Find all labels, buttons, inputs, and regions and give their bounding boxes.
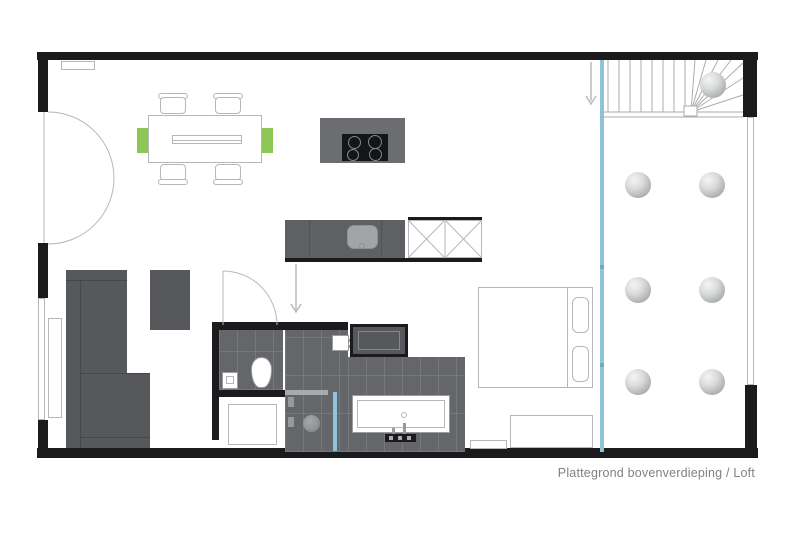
ceiling-light xyxy=(625,369,651,395)
sink-tap-icon xyxy=(359,243,365,249)
shower-drain xyxy=(303,415,320,432)
glass-partition xyxy=(600,60,604,452)
wall-left-upper xyxy=(38,58,48,112)
dining-bench-green-right xyxy=(262,128,273,153)
sofa-seam xyxy=(80,280,81,448)
washbasin xyxy=(332,335,349,351)
burner-icon xyxy=(369,148,382,161)
dining-chair xyxy=(213,163,243,187)
wc-hand-basin xyxy=(222,372,238,389)
burner-icon xyxy=(368,135,382,149)
wc-wall-bottom xyxy=(212,390,285,397)
ceiling-light xyxy=(699,369,725,395)
half-wall xyxy=(285,390,328,395)
cooktop xyxy=(342,134,388,161)
bathroom-door-icon xyxy=(223,271,277,325)
kitchen-counter xyxy=(285,220,405,258)
bathtub xyxy=(352,395,450,433)
arrow-down-icon xyxy=(291,264,301,312)
floor-step xyxy=(470,440,507,449)
wall-right-upper xyxy=(743,57,757,117)
burner-icon xyxy=(348,136,361,149)
ceiling-light xyxy=(699,172,725,198)
arrow-down-icon xyxy=(586,62,596,104)
shower-control xyxy=(288,397,294,407)
dining-table-centerpiece xyxy=(172,135,242,144)
bathroom-vanity xyxy=(350,324,408,357)
shower-control xyxy=(288,417,294,427)
sofa xyxy=(66,270,127,448)
bath-tap-deck xyxy=(385,434,416,442)
closet-wall-left xyxy=(212,397,219,440)
ceiling-light xyxy=(700,72,726,98)
dining-bench-green-left xyxy=(137,128,148,153)
wc-wall-left xyxy=(212,322,219,398)
toilet xyxy=(251,357,272,388)
closet-void xyxy=(228,404,277,445)
shelf-top-left xyxy=(61,61,95,70)
dining-chair xyxy=(213,93,243,117)
double-door-icon xyxy=(44,112,114,244)
bathroom-wall-top xyxy=(212,322,348,330)
sofa-seam xyxy=(80,437,150,438)
pillow xyxy=(572,297,589,333)
dining-chair xyxy=(158,93,188,117)
floor-plan: Plattegrond bovenverdieping / Loft xyxy=(0,0,800,534)
ceiling-light xyxy=(625,172,651,198)
cabinet-crossed xyxy=(408,220,482,258)
pillow xyxy=(572,346,589,382)
sofa-seam xyxy=(80,373,150,374)
dining-chair xyxy=(158,163,188,187)
bed-bench xyxy=(510,415,593,448)
counter-edge xyxy=(285,258,482,262)
wall-right-lower xyxy=(745,385,757,448)
wall-top xyxy=(37,52,758,60)
radiator xyxy=(48,318,62,418)
burner-icon xyxy=(347,149,359,161)
ceiling-light xyxy=(699,277,725,303)
shower-glass-screen xyxy=(333,392,337,451)
ceiling-light xyxy=(625,277,651,303)
sofa-seam xyxy=(66,280,127,281)
bathtub-drain-icon xyxy=(401,412,407,418)
window-left xyxy=(38,298,45,420)
wall-left-lower xyxy=(38,420,48,448)
window-right xyxy=(747,117,754,385)
coffee-table xyxy=(150,270,190,330)
plan-caption: Plattegrond bovenverdieping / Loft xyxy=(558,466,755,480)
wall-left-middle xyxy=(38,243,48,298)
